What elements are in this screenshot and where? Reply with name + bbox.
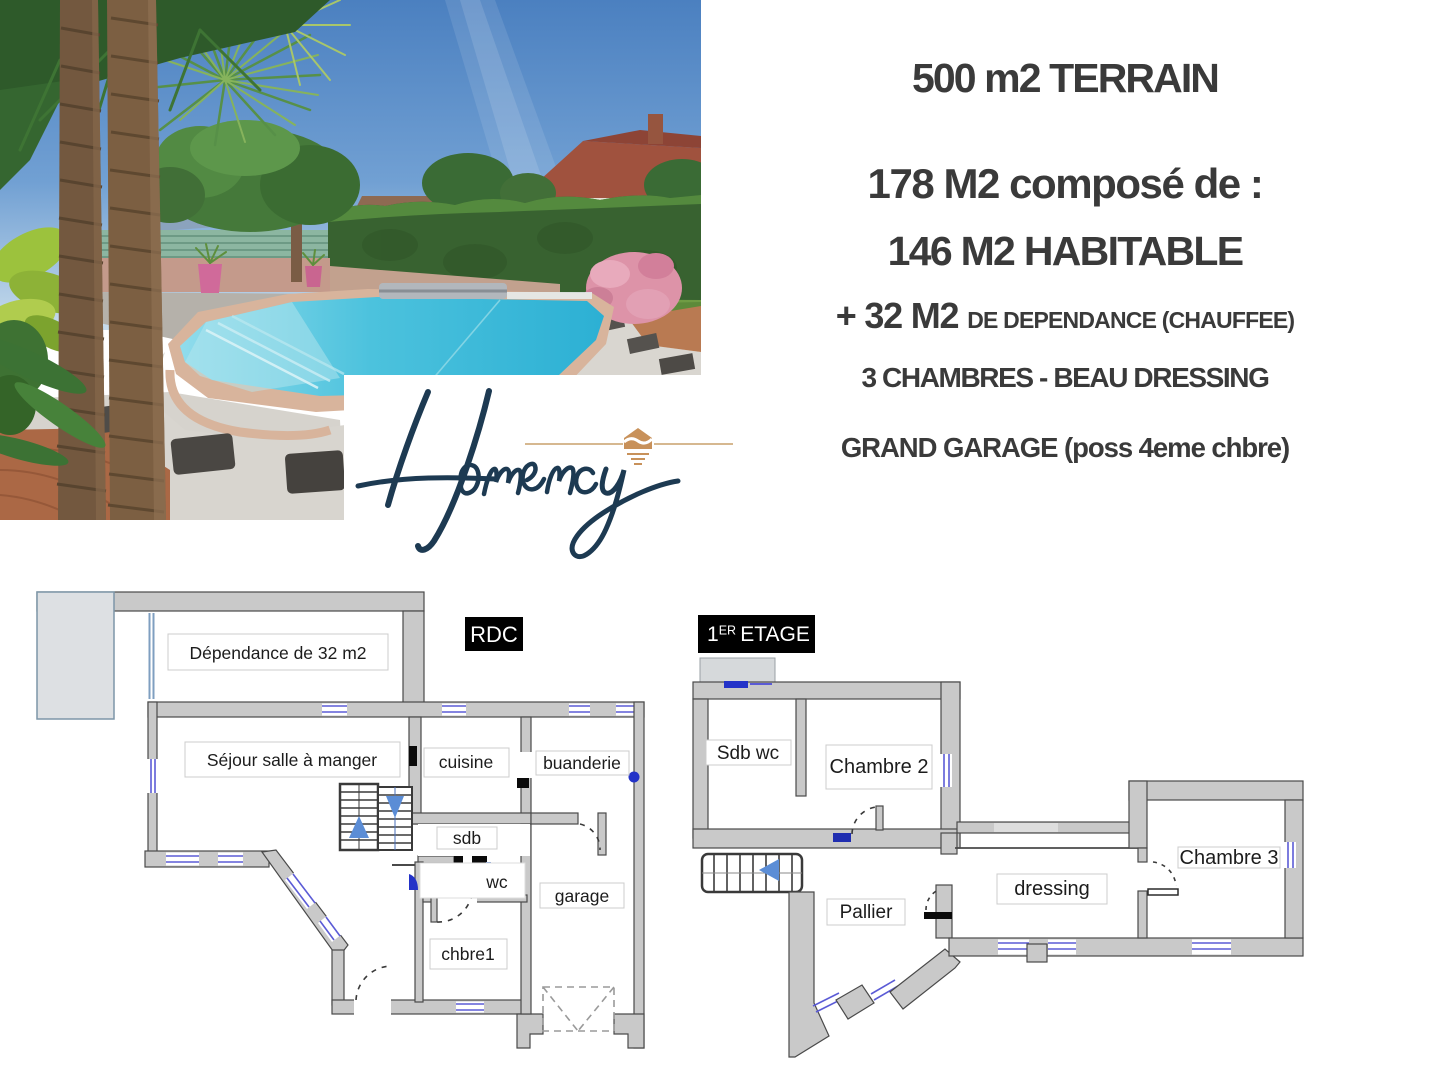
svg-text:Chambre 2: Chambre 2 [830, 756, 929, 778]
svg-text:wc: wc [485, 872, 508, 892]
svg-text:Sdb wc: Sdb wc [717, 743, 779, 764]
svg-text:Séjour salle à manger: Séjour salle à manger [207, 750, 377, 770]
svg-text:Pallier: Pallier [840, 902, 893, 923]
svg-text:sdb: sdb [453, 828, 481, 848]
svg-text:buanderie: buanderie [543, 753, 621, 773]
svg-text:garage: garage [555, 886, 610, 906]
svg-text:dressing: dressing [1014, 878, 1090, 900]
svg-text:cuisine: cuisine [439, 752, 493, 772]
svg-text:chbre1: chbre1 [441, 944, 495, 964]
svg-text:Chambre 3: Chambre 3 [1180, 847, 1279, 869]
svg-text:Dépendance de 32 m2: Dépendance de 32 m2 [189, 643, 366, 663]
svg-text:RDC: RDC [470, 622, 518, 647]
